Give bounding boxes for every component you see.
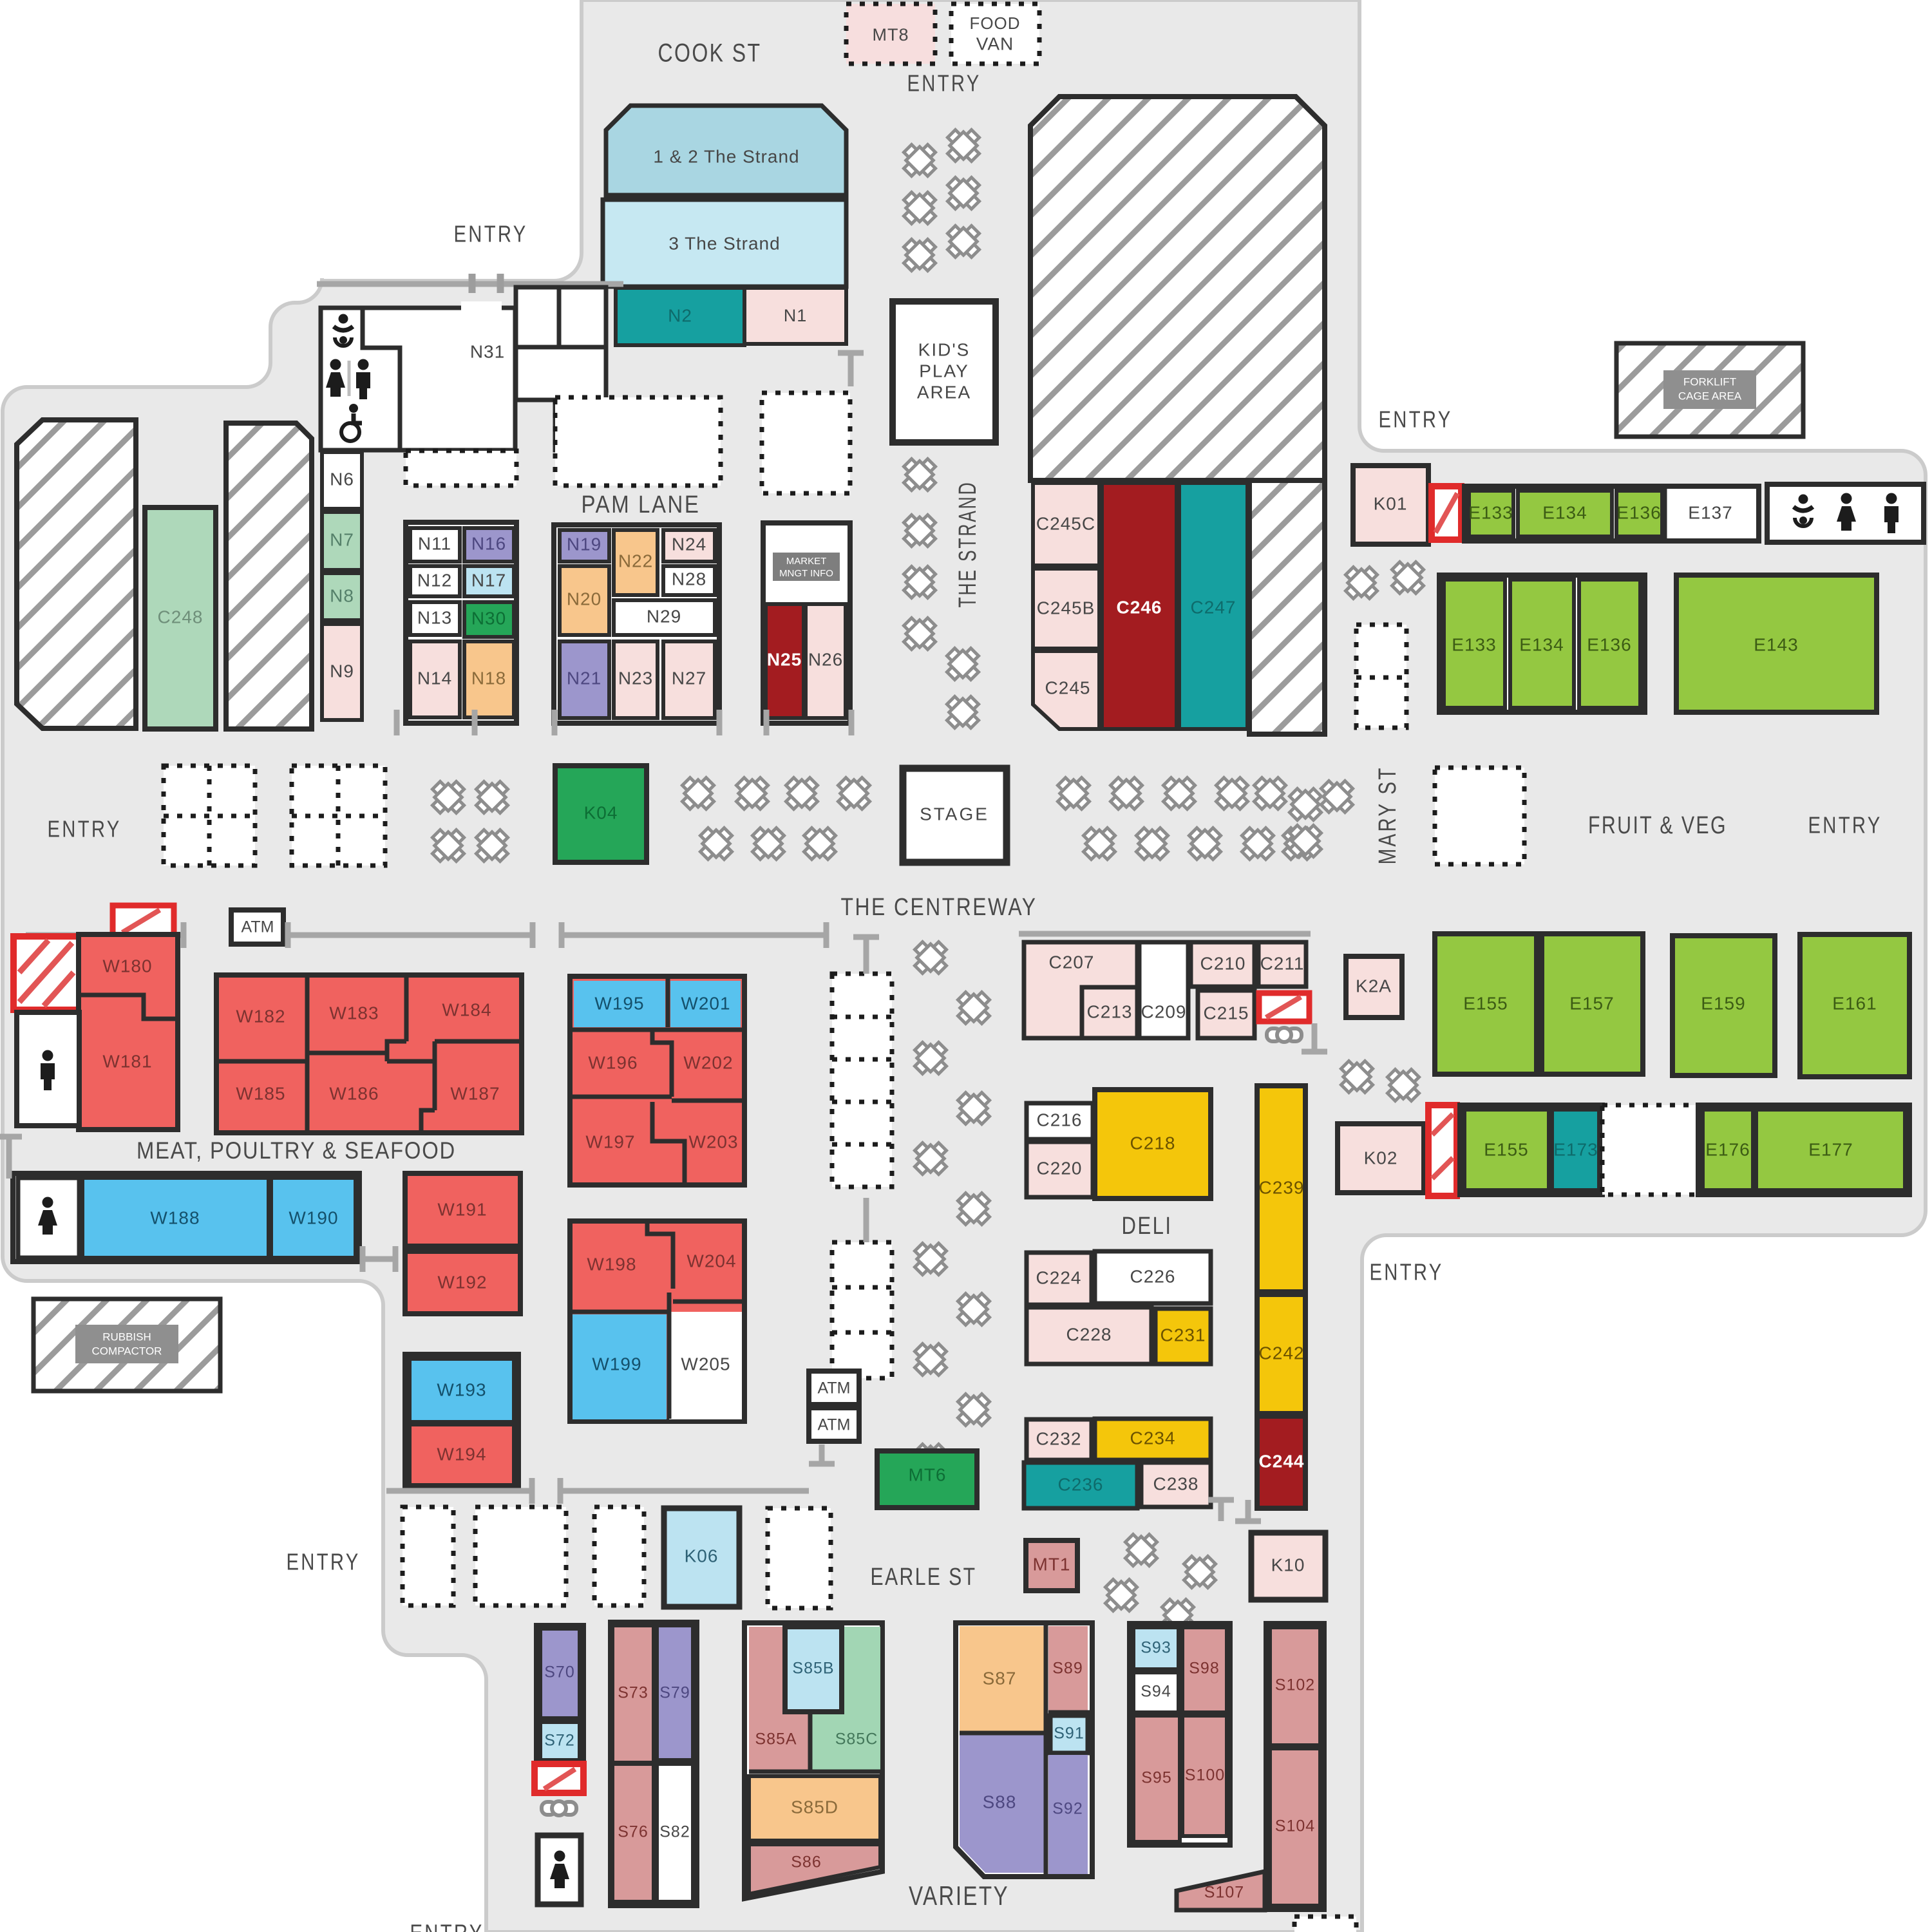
svg-text:C211: C211 xyxy=(1260,953,1305,973)
svg-text:C236: C236 xyxy=(1058,1474,1104,1494)
svg-text:ENTRY: ENTRY xyxy=(287,1549,361,1575)
svg-text:N27: N27 xyxy=(672,668,706,688)
svg-text:N26: N26 xyxy=(808,649,843,669)
svg-text:KID'S: KID'S xyxy=(918,339,971,359)
svg-text:MT6: MT6 xyxy=(909,1464,947,1484)
svg-text:C245C: C245C xyxy=(1036,513,1095,533)
svg-text:N7: N7 xyxy=(330,529,354,549)
svg-text:THE STRAND: THE STRAND xyxy=(954,481,981,608)
svg-text:K01: K01 xyxy=(1374,493,1408,513)
svg-text:C220: C220 xyxy=(1037,1158,1083,1178)
svg-text:C231: C231 xyxy=(1160,1325,1206,1345)
svg-text:N28: N28 xyxy=(672,569,706,589)
svg-text:MARY ST: MARY ST xyxy=(1374,766,1401,865)
svg-text:N2: N2 xyxy=(668,305,692,325)
svg-text:W194: W194 xyxy=(437,1444,486,1464)
svg-text:MEAT, POULTRY & SEAFOOD: MEAT, POULTRY & SEAFOOD xyxy=(137,1137,456,1164)
svg-text:E161: E161 xyxy=(1832,993,1877,1013)
svg-text:ENTRY: ENTRY xyxy=(454,221,528,247)
svg-text:FOOD: FOOD xyxy=(969,14,1020,33)
svg-text:W187: W187 xyxy=(450,1083,500,1103)
svg-text:C215: C215 xyxy=(1204,1003,1249,1023)
svg-text:K10: K10 xyxy=(1271,1555,1305,1575)
svg-text:C232: C232 xyxy=(1036,1428,1082,1448)
svg-text:THE CENTREWAY: THE CENTREWAY xyxy=(841,894,1037,921)
svg-text:C218: C218 xyxy=(1130,1133,1176,1153)
svg-text:C234: C234 xyxy=(1130,1428,1176,1448)
svg-text:E143: E143 xyxy=(1754,634,1798,654)
svg-text:VARIETY: VARIETY xyxy=(909,1880,1009,1911)
svg-text:W196: W196 xyxy=(588,1052,638,1072)
svg-text:N22: N22 xyxy=(618,551,653,571)
svg-text:C246: C246 xyxy=(1117,597,1162,617)
svg-text:W188: W188 xyxy=(150,1207,200,1227)
svg-text:E176: E176 xyxy=(1705,1139,1750,1159)
svg-text:C228: C228 xyxy=(1066,1324,1112,1344)
svg-text:S95: S95 xyxy=(1141,1769,1171,1787)
svg-text:S91: S91 xyxy=(1054,1725,1084,1743)
svg-text:N23: N23 xyxy=(618,668,653,688)
svg-text:N29: N29 xyxy=(647,606,681,626)
svg-text:3 The Strand: 3 The Strand xyxy=(668,233,780,253)
svg-text:E157: E157 xyxy=(1569,993,1614,1013)
svg-text:W203: W203 xyxy=(688,1132,738,1151)
svg-text:C248: C248 xyxy=(158,607,204,627)
svg-text:N11: N11 xyxy=(418,533,451,553)
svg-text:S104: S104 xyxy=(1275,1817,1315,1835)
svg-text:W183: W183 xyxy=(329,1003,379,1023)
svg-text:MT1: MT1 xyxy=(1033,1554,1071,1574)
svg-text:E159: E159 xyxy=(1701,993,1745,1013)
svg-text:E136: E136 xyxy=(1587,634,1631,654)
svg-text:S85B: S85B xyxy=(792,1660,834,1678)
svg-text:E155: E155 xyxy=(1463,993,1508,1013)
svg-text:MARKET: MARKET xyxy=(786,556,827,567)
svg-text:C245B: C245B xyxy=(1037,598,1095,618)
svg-text:N30: N30 xyxy=(471,608,506,628)
svg-text:W204: W204 xyxy=(687,1251,736,1271)
svg-text:N8: N8 xyxy=(330,585,354,605)
svg-text:ENTRY: ENTRY xyxy=(1370,1259,1444,1285)
svg-text:CAGE AREA: CAGE AREA xyxy=(1678,390,1742,402)
svg-text:W182: W182 xyxy=(236,1006,285,1026)
svg-text:W201: W201 xyxy=(681,993,730,1013)
svg-text:COMPACTOR: COMPACTOR xyxy=(92,1345,162,1357)
svg-text:S73: S73 xyxy=(618,1684,648,1702)
svg-text:MNGT INFO: MNGT INFO xyxy=(779,568,833,579)
svg-text:N17: N17 xyxy=(471,570,506,590)
svg-text:W205: W205 xyxy=(681,1354,730,1374)
svg-text:C210: C210 xyxy=(1200,953,1246,973)
svg-text:N18: N18 xyxy=(471,668,506,688)
svg-text:EARLE ST: EARLE ST xyxy=(871,1564,977,1591)
svg-text:S76: S76 xyxy=(618,1823,648,1841)
svg-text:S72: S72 xyxy=(544,1732,574,1750)
svg-text:W193: W193 xyxy=(437,1379,486,1399)
svg-text:S70: S70 xyxy=(544,1663,574,1681)
svg-text:MT8: MT8 xyxy=(873,25,909,44)
svg-text:W202: W202 xyxy=(683,1052,733,1072)
svg-text:W186: W186 xyxy=(329,1083,379,1103)
svg-text:VAN: VAN xyxy=(976,33,1014,53)
svg-text:ENTRY: ENTRY xyxy=(48,816,122,842)
svg-text:W184: W184 xyxy=(442,999,491,1019)
svg-text:C213: C213 xyxy=(1087,1001,1133,1021)
svg-text:ENTRY: ENTRY xyxy=(907,70,981,97)
svg-text:E134: E134 xyxy=(1519,634,1564,654)
svg-text:N13: N13 xyxy=(417,607,452,627)
svg-text:W181: W181 xyxy=(102,1051,152,1071)
svg-text:S86: S86 xyxy=(791,1853,821,1871)
svg-text:S93: S93 xyxy=(1141,1639,1171,1657)
svg-text:S107: S107 xyxy=(1204,1884,1244,1902)
svg-text:N14: N14 xyxy=(417,668,452,688)
svg-text:K2A: K2A xyxy=(1356,976,1392,996)
svg-text:N25: N25 xyxy=(767,649,802,669)
svg-text:W185: W185 xyxy=(236,1083,285,1103)
svg-text:ATM: ATM xyxy=(818,1379,851,1397)
svg-text:E134: E134 xyxy=(1542,502,1587,522)
svg-text:ATM: ATM xyxy=(241,918,274,936)
svg-text:FRUIT & VEG: FRUIT & VEG xyxy=(1588,812,1727,839)
svg-text:C239: C239 xyxy=(1259,1177,1305,1197)
svg-text:N21: N21 xyxy=(567,668,601,688)
svg-text:FORKLIFT: FORKLIFT xyxy=(1683,375,1736,388)
svg-text:W192: W192 xyxy=(437,1272,487,1292)
svg-text:ENTRY: ENTRY xyxy=(1379,406,1453,433)
svg-text:S85C: S85C xyxy=(835,1730,878,1748)
svg-text:COOK ST: COOK ST xyxy=(658,39,762,68)
svg-text:S79: S79 xyxy=(659,1684,690,1702)
svg-text:C224: C224 xyxy=(1036,1267,1082,1287)
svg-text:S92: S92 xyxy=(1052,1800,1083,1818)
svg-text:E136: E136 xyxy=(1616,502,1661,522)
svg-text:C238: C238 xyxy=(1153,1473,1199,1493)
svg-text:S94: S94 xyxy=(1141,1683,1171,1701)
svg-text:S85D: S85D xyxy=(791,1797,838,1817)
svg-text:S100: S100 xyxy=(1185,1766,1225,1785)
svg-text:AREA: AREA xyxy=(917,382,971,402)
svg-text:C245: C245 xyxy=(1045,677,1091,697)
svg-text:W195: W195 xyxy=(594,993,644,1013)
svg-text:S85A: S85A xyxy=(755,1730,797,1748)
svg-text:C244: C244 xyxy=(1259,1451,1305,1471)
svg-text:W191: W191 xyxy=(437,1199,487,1219)
svg-text:S88: S88 xyxy=(983,1792,1017,1812)
svg-text:ENTRY: ENTRY xyxy=(1808,812,1882,838)
svg-text:W180: W180 xyxy=(102,956,152,976)
svg-text:N19: N19 xyxy=(567,534,601,554)
svg-text:N1: N1 xyxy=(784,306,808,325)
svg-text:DELI: DELI xyxy=(1122,1213,1173,1240)
svg-text:N16: N16 xyxy=(471,533,506,553)
svg-text:S87: S87 xyxy=(983,1668,1017,1688)
svg-text:1 & 2 The Strand: 1 & 2 The Strand xyxy=(653,146,799,166)
svg-text:C209: C209 xyxy=(1141,1001,1187,1021)
svg-text:W190: W190 xyxy=(289,1207,338,1227)
svg-text:K06: K06 xyxy=(685,1546,719,1566)
svg-text:C247: C247 xyxy=(1191,597,1236,617)
svg-text:E133: E133 xyxy=(1468,502,1513,522)
svg-text:N31: N31 xyxy=(470,341,505,361)
svg-text:W197: W197 xyxy=(585,1132,635,1151)
svg-text:E173: E173 xyxy=(1553,1139,1598,1159)
svg-text:K04: K04 xyxy=(584,802,618,822)
svg-text:ATM: ATM xyxy=(818,1416,851,1434)
svg-text:W199: W199 xyxy=(592,1354,641,1374)
svg-text:N20: N20 xyxy=(567,589,601,609)
svg-text:E155: E155 xyxy=(1484,1139,1528,1159)
svg-text:C226: C226 xyxy=(1130,1266,1176,1286)
svg-text:PAM LANE: PAM LANE xyxy=(582,491,701,518)
svg-text:C216: C216 xyxy=(1037,1110,1083,1130)
svg-text:E137: E137 xyxy=(1688,502,1732,522)
svg-text:PLAY: PLAY xyxy=(919,361,969,381)
svg-text:S82: S82 xyxy=(659,1823,690,1841)
svg-text:N9: N9 xyxy=(330,661,354,681)
svg-text:C207: C207 xyxy=(1049,952,1095,972)
svg-text:S98: S98 xyxy=(1189,1660,1219,1678)
svg-text:C242: C242 xyxy=(1259,1343,1305,1363)
svg-text:S89: S89 xyxy=(1052,1660,1083,1678)
svg-text:N12: N12 xyxy=(417,570,452,590)
svg-text:E133: E133 xyxy=(1452,634,1496,654)
svg-text:RUBBISH: RUBBISH xyxy=(102,1331,151,1343)
svg-text:E177: E177 xyxy=(1808,1139,1853,1159)
svg-text:N24: N24 xyxy=(672,534,706,554)
svg-text:ENTRY: ENTRY xyxy=(410,1920,484,1932)
svg-text:S102: S102 xyxy=(1275,1676,1315,1694)
svg-text:STAGE: STAGE xyxy=(920,804,989,824)
svg-text:K02: K02 xyxy=(1364,1148,1398,1168)
svg-text:W198: W198 xyxy=(587,1254,636,1274)
svg-text:N6: N6 xyxy=(330,469,354,489)
